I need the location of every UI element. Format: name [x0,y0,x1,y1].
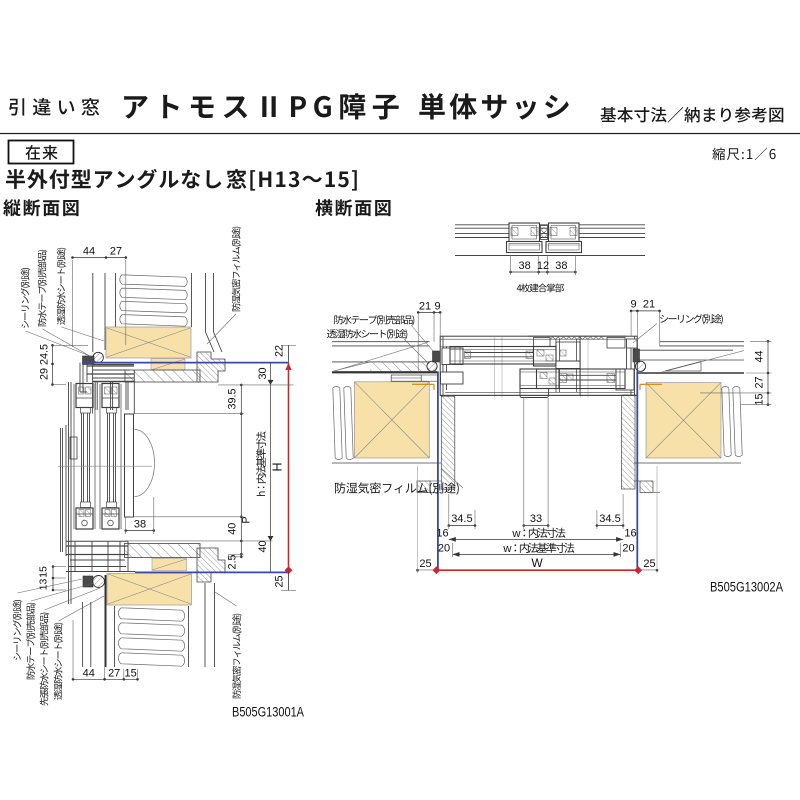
svg-text:44: 44 [83,246,95,258]
svg-text:13: 13 [38,579,50,591]
svg-text:9: 9 [630,299,636,311]
svg-text:30: 30 [257,367,269,379]
svg-text:27: 27 [754,376,766,388]
svg-text:44: 44 [83,668,95,680]
svg-text:38: 38 [134,519,146,531]
svg-text:38: 38 [518,260,530,272]
svg-text:W: W [531,556,543,570]
svg-text:39.5: 39.5 [227,388,239,409]
svg-text:20: 20 [622,543,634,555]
svg-text:9: 9 [434,301,440,313]
svg-text:29: 29 [39,368,51,380]
svg-text:40: 40 [227,523,239,535]
svg-text:12: 12 [537,260,549,272]
svg-text:16: 16 [436,528,448,540]
svg-text:15: 15 [124,668,136,680]
svg-text:25: 25 [274,575,286,587]
svg-text:22: 22 [274,345,286,357]
svg-text:34.5: 34.5 [599,513,620,525]
svg-text:15: 15 [754,393,766,405]
svg-text:27: 27 [110,246,122,258]
svg-text:40: 40 [257,540,269,552]
svg-text:33: 33 [530,513,542,525]
svg-text:P: P [241,516,253,523]
svg-text:H: H [271,462,285,471]
svg-text:15: 15 [38,566,50,578]
svg-text:21: 21 [419,301,431,313]
svg-text:B505G13001A: B505G13001A [232,705,304,720]
svg-text:27: 27 [108,668,120,680]
svg-text:16: 16 [624,528,636,540]
svg-text:38: 38 [555,260,567,272]
svg-text:24.5: 24.5 [39,344,51,365]
svg-text:20: 20 [438,543,450,555]
svg-text:B505G13002A: B505G13002A [710,580,783,595]
svg-text:34.5: 34.5 [451,513,472,525]
svg-text:21: 21 [643,299,655,311]
svg-text:44: 44 [754,350,766,362]
svg-text:25: 25 [643,558,655,570]
svg-text:25: 25 [419,558,431,570]
